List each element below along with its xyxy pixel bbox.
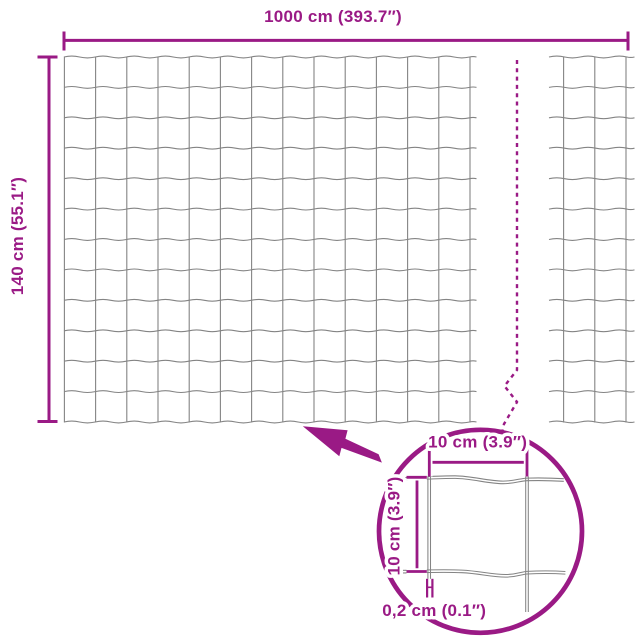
svg-text:10 cm (3.9″): 10 cm (3.9″) [384,476,403,575]
svg-text:10 cm (3.9″): 10 cm (3.9″) [428,433,527,452]
svg-text:1000 cm (393.7″): 1000 cm (393.7″) [264,7,402,26]
svg-text:140 cm (55.1″): 140 cm (55.1″) [8,177,27,295]
svg-text:0,2 cm (0.1″): 0,2 cm (0.1″) [382,601,486,620]
